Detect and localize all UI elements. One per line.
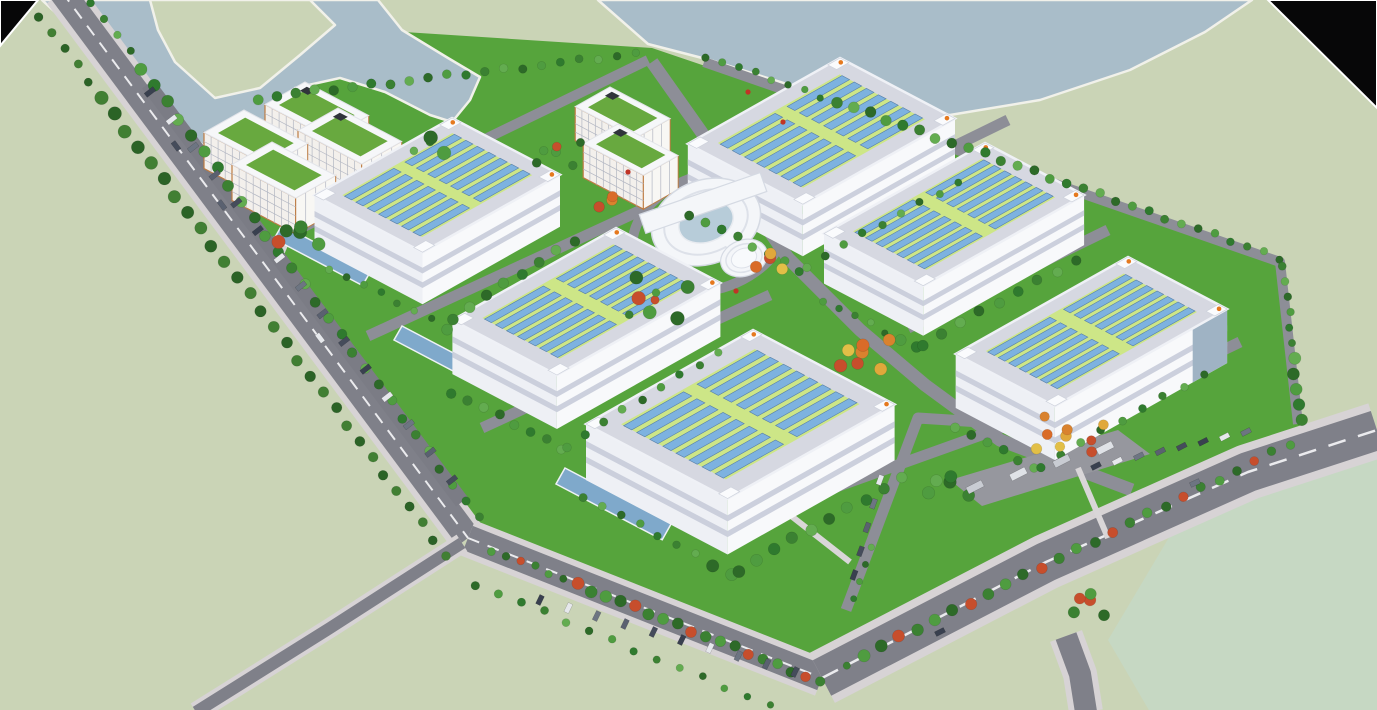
tree [1284, 293, 1292, 301]
tree [411, 307, 418, 314]
tree [815, 677, 825, 687]
tree [733, 565, 745, 577]
tree [1111, 197, 1120, 206]
tree [168, 190, 181, 203]
tree [581, 430, 590, 439]
tree [585, 586, 597, 598]
tree [718, 59, 726, 67]
tree [801, 86, 808, 93]
tree [922, 487, 935, 500]
tree [1118, 417, 1126, 425]
tree [748, 243, 757, 252]
tree [291, 355, 302, 366]
tree [868, 544, 875, 551]
tree [462, 497, 471, 506]
tree [575, 55, 583, 63]
rooftop-beacon [1074, 193, 1079, 198]
tree [1108, 527, 1118, 537]
tree [428, 536, 437, 545]
tree [638, 396, 646, 404]
rooftop-beacon [1126, 259, 1131, 264]
tree [1250, 457, 1259, 466]
tree [341, 421, 351, 431]
tree [563, 443, 572, 452]
tree [100, 15, 108, 23]
tree [1160, 215, 1169, 224]
tree [1267, 447, 1276, 456]
tree [1289, 352, 1301, 364]
tree [127, 47, 135, 55]
rooftop-beacon [614, 230, 619, 235]
tree [255, 306, 266, 317]
tree [636, 520, 644, 528]
tree [519, 65, 528, 74]
tree [912, 624, 924, 636]
tree [706, 560, 718, 572]
tree [945, 470, 957, 482]
tree [249, 212, 260, 223]
tree [1287, 368, 1299, 380]
tree [1085, 588, 1096, 599]
tree [897, 210, 905, 218]
tree [437, 146, 451, 160]
tree [1054, 553, 1065, 564]
tree [463, 396, 473, 406]
tree [842, 344, 854, 356]
tree [657, 383, 665, 391]
tree [865, 107, 876, 118]
tree [947, 138, 957, 148]
tree [983, 588, 994, 599]
tree [598, 502, 606, 510]
tree [74, 60, 82, 68]
tree [281, 337, 292, 348]
tree [471, 581, 480, 590]
tree [817, 95, 824, 102]
tree [360, 281, 367, 288]
tree [743, 649, 754, 660]
tree [629, 600, 641, 612]
tree [831, 97, 842, 108]
tree [896, 472, 907, 483]
tree [840, 240, 848, 248]
tree [1260, 247, 1268, 255]
tree [916, 198, 924, 206]
tree [537, 61, 545, 69]
tree [823, 513, 834, 524]
tree [653, 532, 661, 540]
tree [702, 54, 710, 62]
tree [253, 95, 263, 105]
tree [752, 68, 759, 75]
tree [411, 430, 420, 439]
tree [272, 235, 285, 248]
tree [715, 636, 726, 647]
tree [850, 595, 856, 601]
tree [464, 302, 475, 313]
architectural-rendering-viewport [0, 0, 1377, 710]
tree [495, 410, 505, 420]
tree [701, 218, 710, 227]
tree [1145, 206, 1154, 215]
tree [685, 626, 696, 637]
tree [540, 606, 548, 614]
tree [675, 370, 683, 378]
tree [329, 85, 339, 95]
tree [1031, 443, 1042, 454]
tree [653, 656, 661, 664]
tree [651, 296, 659, 304]
tree [1079, 184, 1088, 193]
tree [1013, 161, 1023, 171]
rooftop-beacon [751, 332, 756, 337]
tree [405, 502, 415, 512]
tree [386, 80, 395, 89]
tree [1013, 286, 1023, 296]
tree [447, 314, 458, 325]
tree [1200, 371, 1208, 379]
rooftop-beacon [838, 60, 843, 65]
tree [996, 156, 1006, 166]
rooftop-beacon [450, 120, 455, 125]
tree [594, 56, 602, 64]
tree [874, 363, 886, 375]
tree [1062, 179, 1071, 188]
tree [378, 289, 385, 296]
red-shrub [625, 169, 630, 174]
tree [765, 248, 776, 259]
tree [1215, 476, 1224, 485]
red-shrub [745, 89, 750, 94]
tree [1211, 229, 1219, 237]
tree [410, 147, 418, 155]
tree [672, 618, 683, 629]
tree [1068, 606, 1080, 618]
tree [999, 445, 1008, 454]
tree [657, 613, 668, 624]
tree [806, 524, 818, 536]
industrial-park-aerial-rendering [0, 0, 1377, 710]
tree [717, 225, 726, 234]
tree [1086, 447, 1096, 457]
tree [857, 339, 870, 352]
tree [368, 452, 378, 462]
tree [568, 161, 577, 170]
tree [479, 403, 489, 413]
tree [875, 640, 887, 652]
tree [1278, 262, 1286, 270]
tree [499, 64, 508, 73]
tree [607, 191, 618, 202]
tree [856, 578, 863, 585]
tree [114, 31, 122, 39]
tree [218, 256, 230, 268]
tree [572, 577, 584, 589]
tree [424, 131, 438, 145]
tree [1090, 537, 1100, 547]
tree [131, 141, 144, 154]
tree [955, 317, 966, 328]
tree [858, 650, 870, 662]
tree [777, 263, 788, 274]
tree [366, 79, 376, 89]
tree [700, 631, 711, 642]
tree [1053, 267, 1063, 277]
tree [222, 180, 233, 191]
tree [936, 190, 944, 198]
tree [862, 561, 869, 568]
tree [714, 349, 722, 357]
tree [532, 562, 540, 570]
tree [442, 324, 453, 335]
rooftop-beacon [550, 172, 555, 177]
tree [608, 635, 616, 643]
tree [398, 414, 407, 423]
tree [560, 575, 568, 583]
tree [950, 423, 960, 433]
tree [1062, 424, 1073, 435]
tree [309, 85, 319, 95]
tree [767, 701, 774, 708]
tree [294, 221, 307, 234]
tree [750, 261, 762, 273]
tree [34, 13, 43, 22]
red-shrub [780, 119, 785, 124]
tree [879, 221, 887, 229]
tree [552, 142, 561, 151]
tree [510, 420, 519, 429]
tree [310, 297, 320, 307]
tree [84, 78, 92, 86]
tree [630, 647, 638, 655]
tree [744, 693, 751, 700]
tree [930, 475, 942, 487]
tree [676, 664, 683, 671]
tree [487, 548, 495, 556]
tree [955, 179, 962, 186]
rooftop-beacon [945, 116, 950, 121]
tree [684, 211, 694, 221]
tree [118, 125, 131, 138]
tree [768, 543, 780, 555]
tree [95, 91, 109, 105]
tree [551, 245, 561, 255]
tree [699, 673, 706, 680]
tree [1287, 308, 1295, 316]
tree [87, 0, 95, 7]
tree [681, 280, 695, 294]
tree [526, 427, 535, 436]
tree [929, 614, 941, 626]
tree [1232, 466, 1241, 475]
tree [205, 240, 217, 252]
tree [181, 206, 193, 218]
red-shrub [733, 288, 738, 293]
tree [673, 541, 681, 549]
tree [1142, 508, 1152, 518]
tree [821, 252, 829, 260]
tree [914, 125, 925, 136]
tree [355, 436, 365, 446]
tree [145, 156, 158, 169]
tree [786, 532, 798, 544]
tree [435, 465, 444, 474]
tree [185, 130, 197, 142]
tree [481, 290, 492, 301]
tree [721, 685, 728, 692]
tree [1285, 324, 1293, 332]
tree [305, 371, 316, 382]
tree [480, 67, 489, 76]
tree [556, 58, 564, 66]
tree [852, 358, 864, 370]
tree [475, 513, 483, 521]
tree [1071, 543, 1082, 554]
tree [545, 570, 553, 578]
tree [393, 300, 400, 307]
tree [428, 315, 435, 322]
tree [462, 71, 471, 80]
tree [652, 289, 660, 297]
tree [318, 387, 329, 398]
tree [272, 91, 282, 101]
tree [801, 672, 811, 682]
tree [534, 257, 544, 267]
tree [1098, 420, 1108, 430]
tree [841, 502, 852, 513]
tree [517, 269, 527, 279]
tree [820, 298, 827, 305]
tree [286, 263, 297, 274]
tree [851, 312, 858, 319]
tree [974, 306, 984, 316]
tree [1036, 563, 1047, 574]
tree [442, 70, 451, 79]
tree [867, 319, 874, 326]
tree [773, 659, 783, 669]
tree [965, 598, 977, 610]
tree [834, 359, 847, 372]
tree [1177, 220, 1185, 228]
tree [446, 389, 456, 399]
tree [539, 146, 548, 155]
tree [1040, 412, 1050, 422]
tree [405, 76, 414, 85]
tree [348, 82, 358, 92]
tree [897, 120, 908, 131]
tree [1288, 339, 1296, 347]
tree [803, 263, 812, 272]
tree [1071, 256, 1081, 266]
tree [835, 305, 842, 312]
tree [1194, 224, 1202, 232]
tree [692, 550, 700, 558]
tree [517, 598, 525, 606]
tree [881, 115, 892, 126]
tree [1226, 238, 1234, 246]
tree [585, 627, 593, 635]
tree [291, 88, 301, 98]
tree [615, 595, 627, 607]
tree [347, 348, 357, 358]
tree [343, 273, 350, 280]
tree [670, 311, 684, 325]
tree [617, 511, 625, 519]
tree [1042, 429, 1052, 439]
tree [280, 224, 293, 237]
tree [1036, 463, 1045, 472]
tree [1074, 593, 1085, 604]
tree [768, 77, 775, 84]
rooftop-beacon [1217, 307, 1222, 312]
tree [231, 272, 243, 284]
rooftop-beacon [884, 402, 889, 407]
tree [108, 107, 121, 120]
tree [936, 329, 947, 340]
tree [1161, 502, 1171, 512]
tree [502, 552, 510, 560]
tree [1290, 383, 1302, 395]
tree [883, 334, 895, 346]
tree [735, 63, 743, 71]
tree [733, 232, 742, 241]
tree [964, 143, 974, 153]
tree [542, 434, 551, 443]
tree [1000, 579, 1011, 590]
tree [594, 202, 605, 213]
tree [858, 229, 866, 237]
tree [259, 231, 270, 242]
tree [730, 641, 741, 652]
tree [162, 95, 174, 107]
tree [1286, 441, 1295, 450]
tree [562, 619, 570, 627]
tree [570, 236, 580, 246]
tree [423, 73, 432, 82]
tree [378, 470, 388, 480]
tree [983, 438, 992, 447]
tree [498, 278, 509, 289]
tree [391, 486, 401, 496]
tree [861, 494, 872, 505]
tree [245, 287, 257, 299]
tree [930, 133, 940, 143]
tree [576, 138, 584, 146]
tree [892, 630, 904, 642]
tree [613, 52, 621, 60]
tree [1032, 275, 1042, 285]
tree [1055, 442, 1065, 452]
tree [1180, 383, 1188, 391]
tree [946, 604, 958, 616]
tree [795, 267, 804, 276]
tree [632, 49, 640, 57]
tree [696, 361, 704, 369]
tree [625, 311, 633, 319]
tree [331, 402, 342, 413]
tree [1243, 243, 1251, 251]
tree [1030, 166, 1040, 176]
rooftop-beacon [710, 280, 715, 285]
tree [517, 557, 525, 565]
tree [1096, 188, 1105, 197]
tree [532, 158, 541, 167]
tree [494, 590, 503, 599]
tree [980, 147, 990, 157]
tree [268, 321, 279, 332]
tree [1138, 404, 1146, 412]
tree [199, 146, 211, 158]
